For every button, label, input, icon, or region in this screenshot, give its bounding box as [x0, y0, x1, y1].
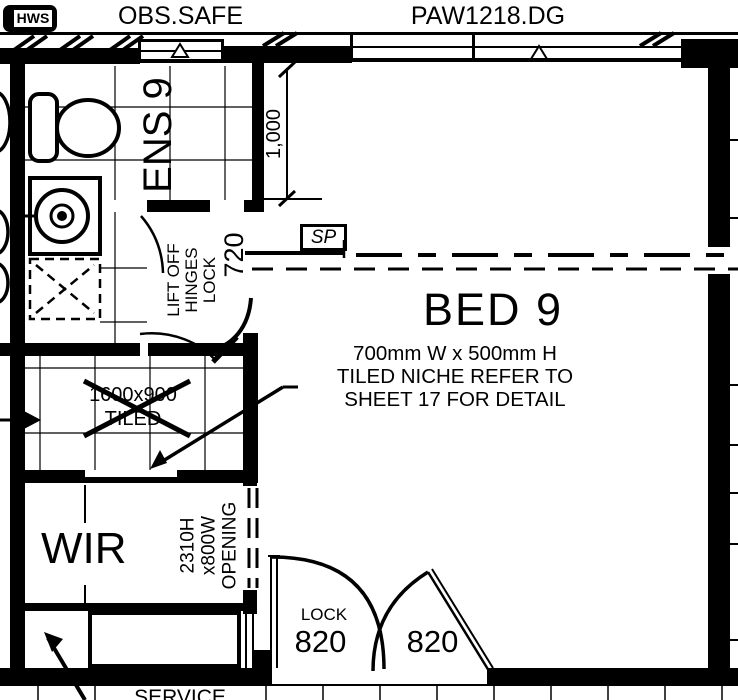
right-wall-notch [708, 247, 730, 274]
door-lock-label: LOCK [298, 605, 350, 625]
door-width-left-label: 820 [288, 624, 353, 660]
door-width-right-label: 820 [400, 624, 465, 660]
niche-note-line3: SHEET 17 FOR DETAIL [310, 388, 600, 411]
vanity-cabinet [28, 176, 102, 256]
left-wall [10, 57, 25, 672]
shower-base-dashed [30, 259, 100, 319]
shower-top-wall-gap [140, 343, 148, 356]
opening-note-line2: x800W [199, 496, 220, 596]
window-label-paw1218: PAW1218.DG [383, 2, 593, 31]
room-label-bed9: BED 9 [398, 284, 588, 336]
service-cabinet [88, 611, 241, 668]
opening-note-line1: 2310H [178, 496, 199, 596]
niche-slot [85, 470, 177, 477]
adjacent-shelf-line [726, 384, 738, 386]
ens-bottom-wall [147, 200, 210, 212]
window1-bottom-line [138, 59, 224, 63]
shower-size-note: 1600x900 TILED [73, 383, 193, 431]
adjacent-shelf-line [726, 217, 738, 219]
window2-mid-line [350, 46, 683, 48]
door-note-line3: LOCK [201, 230, 219, 330]
door-note-line2: HINGES [183, 230, 201, 330]
shower-right-wall [243, 333, 258, 483]
hws-unit: HWS [3, 5, 57, 32]
shower-size-line2: TILED [73, 407, 193, 431]
wir-shelf-line [84, 585, 86, 603]
top-wall-segment-mid [222, 46, 352, 63]
top-outer-wall-line [0, 32, 738, 35]
door-note-lift-off-hinges-lock: LIFT OFF HINGES LOCK [165, 230, 219, 330]
opening-top-stub [243, 470, 257, 486]
room-label-ens9: ENS 9 [136, 70, 180, 200]
window1-top-line [138, 39, 224, 42]
window2-left-end [350, 33, 353, 62]
window1-left-end [138, 39, 141, 63]
door-hinge-block [252, 650, 272, 670]
dimension-label-720: 720 [219, 225, 249, 285]
window2-bottom-line [350, 58, 683, 62]
hws-label: HWS [14, 10, 52, 27]
room-label-wir: WIR [38, 524, 130, 574]
bottom-wall-left [0, 668, 272, 684]
floor-plan: HWS OBS.SAFE PAW1218.DG ENS 9 1,000 720 … [0, 0, 738, 700]
right-wall [708, 62, 730, 672]
service-label: SERVICE [105, 686, 255, 700]
smoke-provision-label: SP [311, 227, 336, 248]
bottom-wall-right [487, 668, 738, 684]
opening-note: 2310H x800W OPENING [178, 496, 241, 596]
access-arrow [44, 632, 85, 700]
adjacent-fixtures [0, 92, 10, 303]
opening-bottom-stub [243, 590, 257, 614]
shower-size-line1: 1600x900 [73, 383, 193, 407]
adjacent-shelf-line [726, 139, 738, 141]
door-note-line1: LIFT OFF [165, 230, 183, 330]
adjacent-shelf-line [726, 639, 738, 641]
niche-note-line2: TILED NICHE REFER TO [310, 365, 600, 388]
adjacent-shelf-line [726, 444, 738, 446]
dimension-label-1000: 1,000 [263, 104, 285, 164]
window1-mid-line [138, 50, 224, 52]
niche-note-line1: 700mm W x 500mm H [310, 342, 600, 365]
adjacent-shelf-line [726, 492, 738, 494]
window-label-obs-safe: OBS.SAFE [103, 2, 258, 31]
smoke-provision-box: SP [300, 224, 347, 251]
wir-shelf-line [84, 485, 86, 523]
ens-bed-wall-stub [244, 200, 264, 212]
door-swing-left-bath [141, 216, 163, 273]
shower-top-wall [0, 343, 243, 356]
window2-divider [472, 33, 475, 62]
toilet [30, 94, 119, 161]
robe-opening-dashes [249, 488, 257, 588]
adjacent-shelf-line [726, 543, 738, 545]
opening-note-line3: OPENING [220, 496, 241, 596]
wir-bottom-wall [25, 603, 247, 611]
niche-note: 700mm W x 500mm H TILED NICHE REFER TO S… [310, 342, 600, 411]
